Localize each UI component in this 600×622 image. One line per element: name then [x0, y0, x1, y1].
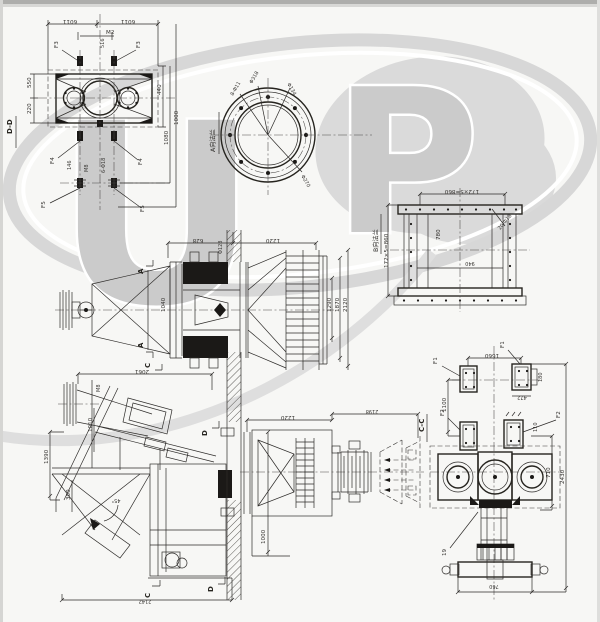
dd-note-bolts: 6-Φ18 — [101, 158, 107, 173]
scan-top-band — [0, 0, 600, 4]
front-angle-45: 45° — [111, 497, 120, 503]
cc-left-center-dot — [456, 475, 460, 479]
front-dim-300: 300 — [66, 489, 72, 500]
cc-note-19: 19 — [442, 548, 448, 556]
frame-b-title: B向法兰 — [372, 229, 380, 252]
cc-dim-180: 180 — [538, 372, 544, 382]
dd-label-m2: M2 — [106, 30, 114, 36]
side-dim-1870: 1870 — [335, 297, 341, 312]
side-wall-hatch-bottom — [227, 352, 241, 378]
watermark-letter-p: P — [333, 47, 480, 280]
frame-b-dim-left: 172×5=860 — [384, 233, 390, 268]
dd-dim-550: 550 — [27, 77, 33, 88]
outlet-dim-1220: 1220 — [280, 414, 295, 420]
cc-flange-band — [479, 500, 512, 508]
flange-a-title: A向法兰 — [209, 129, 217, 152]
frame-b-dim-top: 172×5=860 — [444, 188, 479, 194]
dd-note-146: 146 — [67, 160, 73, 170]
side-dim-1290: 1290 — [327, 297, 333, 312]
dd-dim-1080: 1080 — [164, 130, 170, 145]
cc-section-label: C-C — [418, 419, 426, 432]
side-note-128: Φ128 — [218, 241, 224, 254]
scan-left-band — [0, 0, 3, 622]
scanned-engineering-drawing: U P 6011 6011 M2 516 F3 F3 — [0, 0, 600, 622]
side-wall-hatch-top — [227, 230, 241, 262]
front-exciter-block — [218, 470, 232, 498]
dd-f3-left: F3 — [54, 41, 60, 48]
dd-center-bolt — [97, 120, 103, 127]
cc-spline-band — [477, 544, 514, 548]
cc-dim-1100: 1100 — [442, 397, 448, 412]
dd-dim-220: 220 — [27, 103, 33, 114]
front-note-m8: M8 — [96, 385, 102, 393]
front-marker-d-top: D — [201, 430, 209, 436]
cc-dim-760: 760 — [489, 583, 499, 589]
front-dim-1010: 1010 — [88, 417, 94, 432]
dd-dim-1000: 1000 — [174, 110, 180, 125]
cc-dim-472: 472 — [517, 394, 527, 400]
drawing-canvas: U P 6011 6011 M2 516 F3 F3 — [0, 0, 600, 622]
front-marker-c-top: C — [144, 363, 152, 368]
front-marker-d-bottom: D — [207, 586, 215, 592]
frame-b-dim-940: 940 — [465, 260, 475, 266]
side-dim-1220: 1220 — [265, 237, 280, 243]
side-spring-block-bottom — [183, 336, 228, 358]
dd-dim-516: 516 — [100, 38, 106, 48]
cc-dim-1660: 1660 — [484, 352, 499, 358]
dd-f3-right: F3 — [136, 41, 142, 48]
dd-dim-top-left: 6011 — [62, 18, 77, 24]
dd-f5-left: F5 — [41, 201, 47, 208]
side-dim-2120: 2120 — [343, 297, 349, 312]
cc-dim-2430: 2430 — [560, 469, 566, 484]
scan-top-band-soft — [0, 4, 600, 7]
cc-f1-top: F1 — [500, 341, 506, 348]
outlet-dim-1000: 1000 — [261, 529, 267, 544]
front-dim-1390: 1390 — [44, 449, 50, 464]
dd-note-m8: M8 — [84, 165, 90, 173]
side-dim-1040: 1040 — [161, 297, 167, 312]
side-spring-block-top — [183, 262, 228, 284]
outlet-dim-2198: 2198 — [366, 408, 379, 414]
front-marker-c-bottom: C — [144, 593, 152, 598]
dd-f4-right: F4 — [138, 158, 144, 165]
side-bearing-center — [84, 308, 88, 312]
side-marker-a-top: A — [137, 268, 145, 274]
cc-center-dot — [493, 475, 497, 479]
frame-b-dim-780: 780 — [436, 229, 442, 240]
side-marker-a-bottom: A — [137, 342, 145, 348]
front-wall-hatch-top — [227, 378, 241, 422]
dd-section-label: D-D — [6, 119, 14, 134]
cc-right-center-dot — [530, 475, 534, 479]
dd-f4-left: F4 — [50, 157, 56, 164]
cc-f2-right: F2 — [556, 411, 562, 418]
dd-f5-right: F5 — [140, 205, 146, 212]
dd-dim-440: 440 — [157, 84, 163, 95]
side-dim-628: 628 — [192, 237, 203, 243]
dd-dim-top-right: 6011 — [120, 18, 135, 24]
cc-f1-left: F1 — [433, 357, 439, 364]
